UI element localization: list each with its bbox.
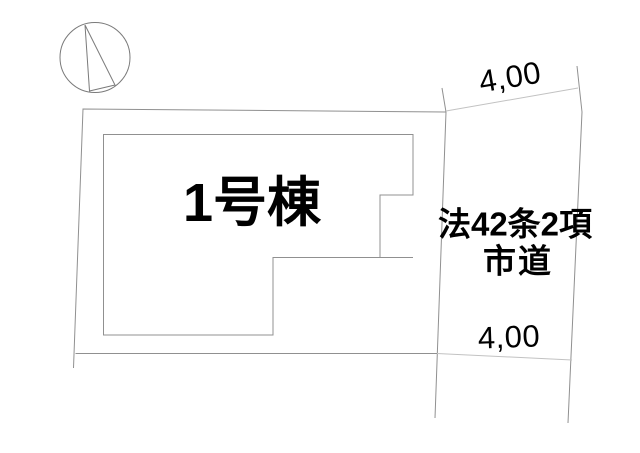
- road-law-label: 法42条2項: [438, 206, 593, 243]
- compass-circle: [60, 23, 130, 93]
- road-width-top-label: 4,00: [476, 55, 543, 100]
- compass-needle: [85, 25, 115, 91]
- site-plan: 1号棟 法42条2項 市道 4,00 4,00: [0, 0, 640, 453]
- building-label: 1号棟: [183, 173, 322, 233]
- plot-boundary-left-top: [74, 109, 447, 368]
- road-edge-left: [435, 88, 446, 418]
- road-width-bottom-label: 4,00: [477, 318, 541, 355]
- road-name-label: 市道: [483, 243, 553, 280]
- road-edge-right: [568, 66, 582, 423]
- building-outline: [104, 135, 414, 336]
- site-plan-canvas: 1号棟 法42条2項 市道 4,00 4,00: [0, 0, 640, 453]
- north-arrow-icon: [60, 23, 130, 93]
